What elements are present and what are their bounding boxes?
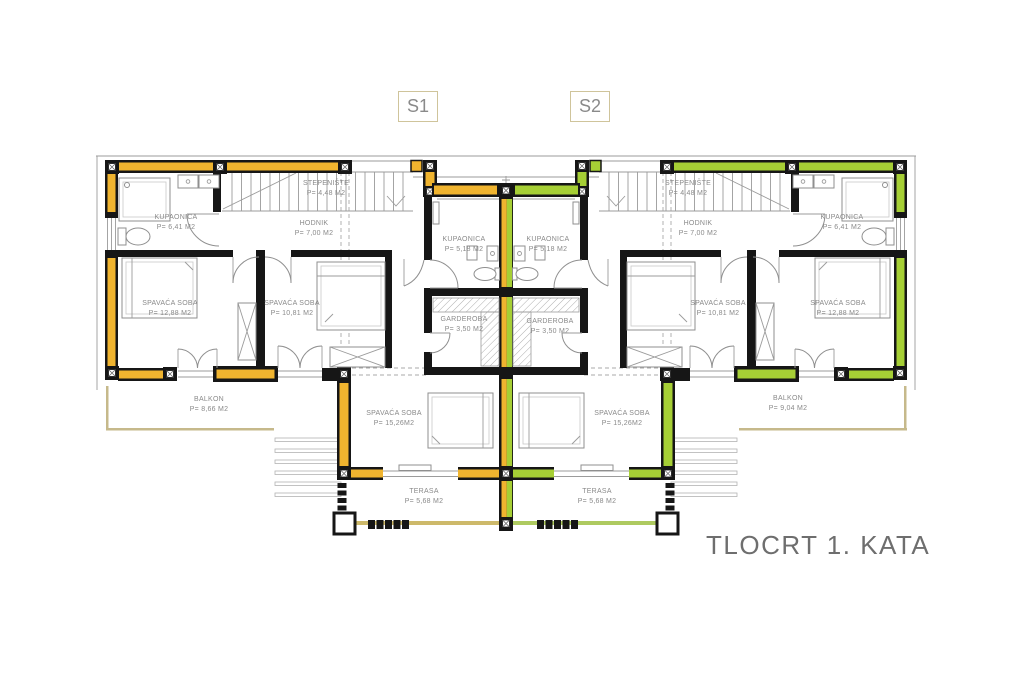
unit-label-s2: S2: [570, 91, 610, 122]
room-label-s1-kupaonica-mala: KUPAONICAP= 5,18 M2: [443, 235, 486, 255]
room-label-s1-balkon: BALKONP= 8,66 M2: [190, 395, 229, 415]
room-label-s1-spavaca-velika: SPAVAĆA SOBAP= 12,88 M2: [142, 299, 198, 319]
room-label-s1-terasa: TERASAP= 5,68 M2: [405, 487, 444, 507]
floor-plan-page: S1 S2 STEPENIŠTEP= 4,48 M2 KUPAONICAP= 6…: [0, 0, 1024, 681]
room-label-s2-spavaca-velika: SPAVAĆA SOBAP= 12,88 M2: [810, 299, 866, 319]
room-label-s2-kupaonica: KUPAONICAP= 6,41 M2: [821, 213, 864, 233]
room-label-s1-stepeniste: STEPENIŠTEP= 4,48 M2: [303, 179, 349, 199]
unit-label-s1: S1: [398, 91, 438, 122]
room-label-s2-kupaonica-mala: KUPAONICAP= 5,18 M2: [527, 235, 570, 255]
room-label-s2-terasa: TERASAP= 5,68 M2: [578, 487, 617, 507]
room-label-s1-hodnik: HODNIKP= 7,00 M2: [295, 219, 334, 239]
room-label-s1-spavaca-srednja: SPAVAĆA SOBAP= 10,81 M2: [264, 299, 320, 319]
floor-plan-drawing: [0, 0, 1024, 681]
room-label-s2-balkon: BALKONP= 9,04 M2: [769, 394, 808, 414]
room-label-s2-garderoba: GARDEROBAP= 3,50 M2: [527, 317, 574, 337]
room-label-s2-spavaca-srednja: SPAVAĆA SOBAP= 10,81 M2: [690, 299, 746, 319]
page-title: TLOCRT 1. KATA: [706, 530, 930, 561]
room-label-s1-kupaonica: KUPAONICAP= 6,41 M2: [155, 213, 198, 233]
room-label-s2-stepeniste: STEPENIŠTEP= 4,48 M2: [665, 179, 711, 199]
room-label-s1-garderoba: GARDEROBAP= 3,50 M2: [441, 315, 488, 335]
room-label-s2-hodnik: HODNIKP= 7,00 M2: [679, 219, 718, 239]
room-label-s1-spavaca-donja: SPAVAĆA SOBAP= 15,26M2: [366, 409, 422, 429]
room-label-s2-spavaca-donja: SPAVAĆA SOBAP= 15,26M2: [594, 409, 650, 429]
